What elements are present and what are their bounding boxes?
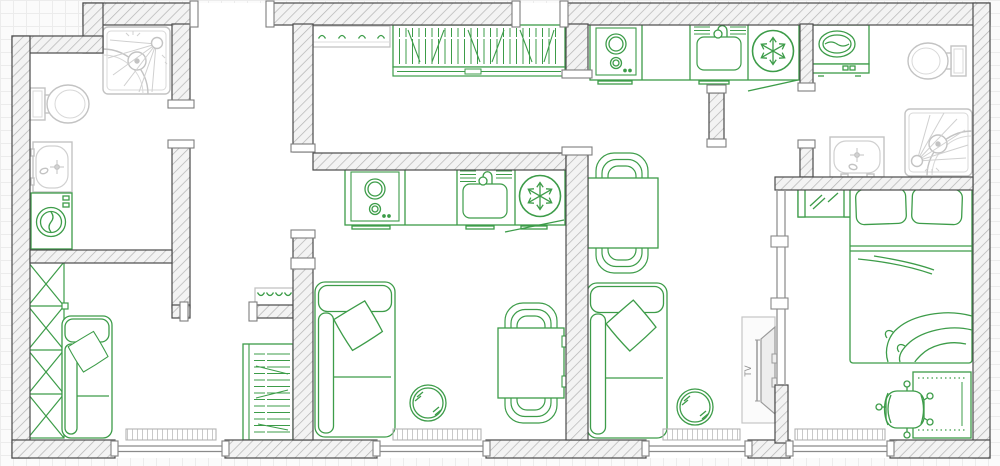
door-jamb [291,230,315,238]
bookshelf[interactable] [243,344,293,440]
tv-label: TV [744,365,754,377]
wall-segment [313,153,566,170]
double-bed[interactable] [850,183,972,363]
door-jamb [291,144,315,152]
toilet-2[interactable] [908,43,966,79]
wall-segment [225,440,377,458]
wall-segment [172,143,190,308]
dining-table-2[interactable] [588,178,658,248]
wall-segment [709,93,724,141]
wall-segment [12,440,115,458]
wall-segment [268,3,518,25]
wall-segment [172,24,190,107]
wall-joint [291,258,315,269]
wall-segment [562,3,990,25]
wall-segment [775,177,973,190]
wall-segment [566,24,588,77]
floor-plan-svg: TV [0,0,1000,466]
door-jamb [512,1,520,27]
door-jamb [707,139,726,147]
wall-segment [255,305,293,318]
door-jamb [168,140,194,148]
door-jamb [180,302,188,321]
tv-body[interactable] [761,327,775,414]
wash-basin-2[interactable] [830,137,884,177]
pouf[interactable] [410,385,446,421]
kitchen-sink[interactable] [460,171,512,218]
door-jamb [190,1,198,27]
door-jamb [562,147,592,155]
door-jamb [562,70,592,78]
radiator[interactable] [795,429,885,440]
wall-segment [775,385,788,443]
pouf-2[interactable] [677,389,713,425]
cooktop-2[interactable] [596,28,636,75]
tv-unit[interactable]: TV [742,317,777,423]
door-jamb [707,85,726,93]
door-jamb [249,302,257,321]
door-jamb [798,140,815,148]
corner-shower-2[interactable] [905,109,972,176]
door-jamb [560,1,568,27]
wall-segment [800,24,813,90]
refrigerator-2[interactable] [753,31,794,72]
dining-table[interactable] [498,328,564,398]
floor-plan-canvas: TV [0,0,1000,466]
bed-pillow [911,188,962,225]
washing-machine-2[interactable] [812,25,869,76]
wall-segment [293,24,313,152]
sofa-left[interactable] [62,316,112,438]
radiator[interactable] [663,429,740,440]
door-jamb [266,1,274,27]
wall-segment [486,440,646,458]
coat-rack[interactable] [313,26,390,47]
open-wardrobe[interactable] [393,25,565,76]
refrigerator[interactable] [520,176,561,217]
wall-segment [890,440,990,458]
washing-machine[interactable] [31,193,72,249]
radiator[interactable] [393,429,481,440]
wall-segment [566,150,588,440]
coat-hooks[interactable] [255,288,293,306]
wall-segment [973,3,990,458]
mirror-dresser[interactable] [798,186,851,217]
wall-segment [12,36,30,458]
radiator[interactable] [126,429,216,440]
door-jamb [798,83,815,91]
door-jamb [168,100,194,108]
sofa-center[interactable] [315,282,395,437]
cooktop[interactable] [351,172,399,221]
wash-basin[interactable] [31,142,72,192]
wall-segment [30,250,172,263]
dining-set-right[interactable] [588,153,658,273]
bed-pillow [855,188,906,225]
toilet[interactable] [30,85,89,123]
corner-shower[interactable] [103,27,170,94]
